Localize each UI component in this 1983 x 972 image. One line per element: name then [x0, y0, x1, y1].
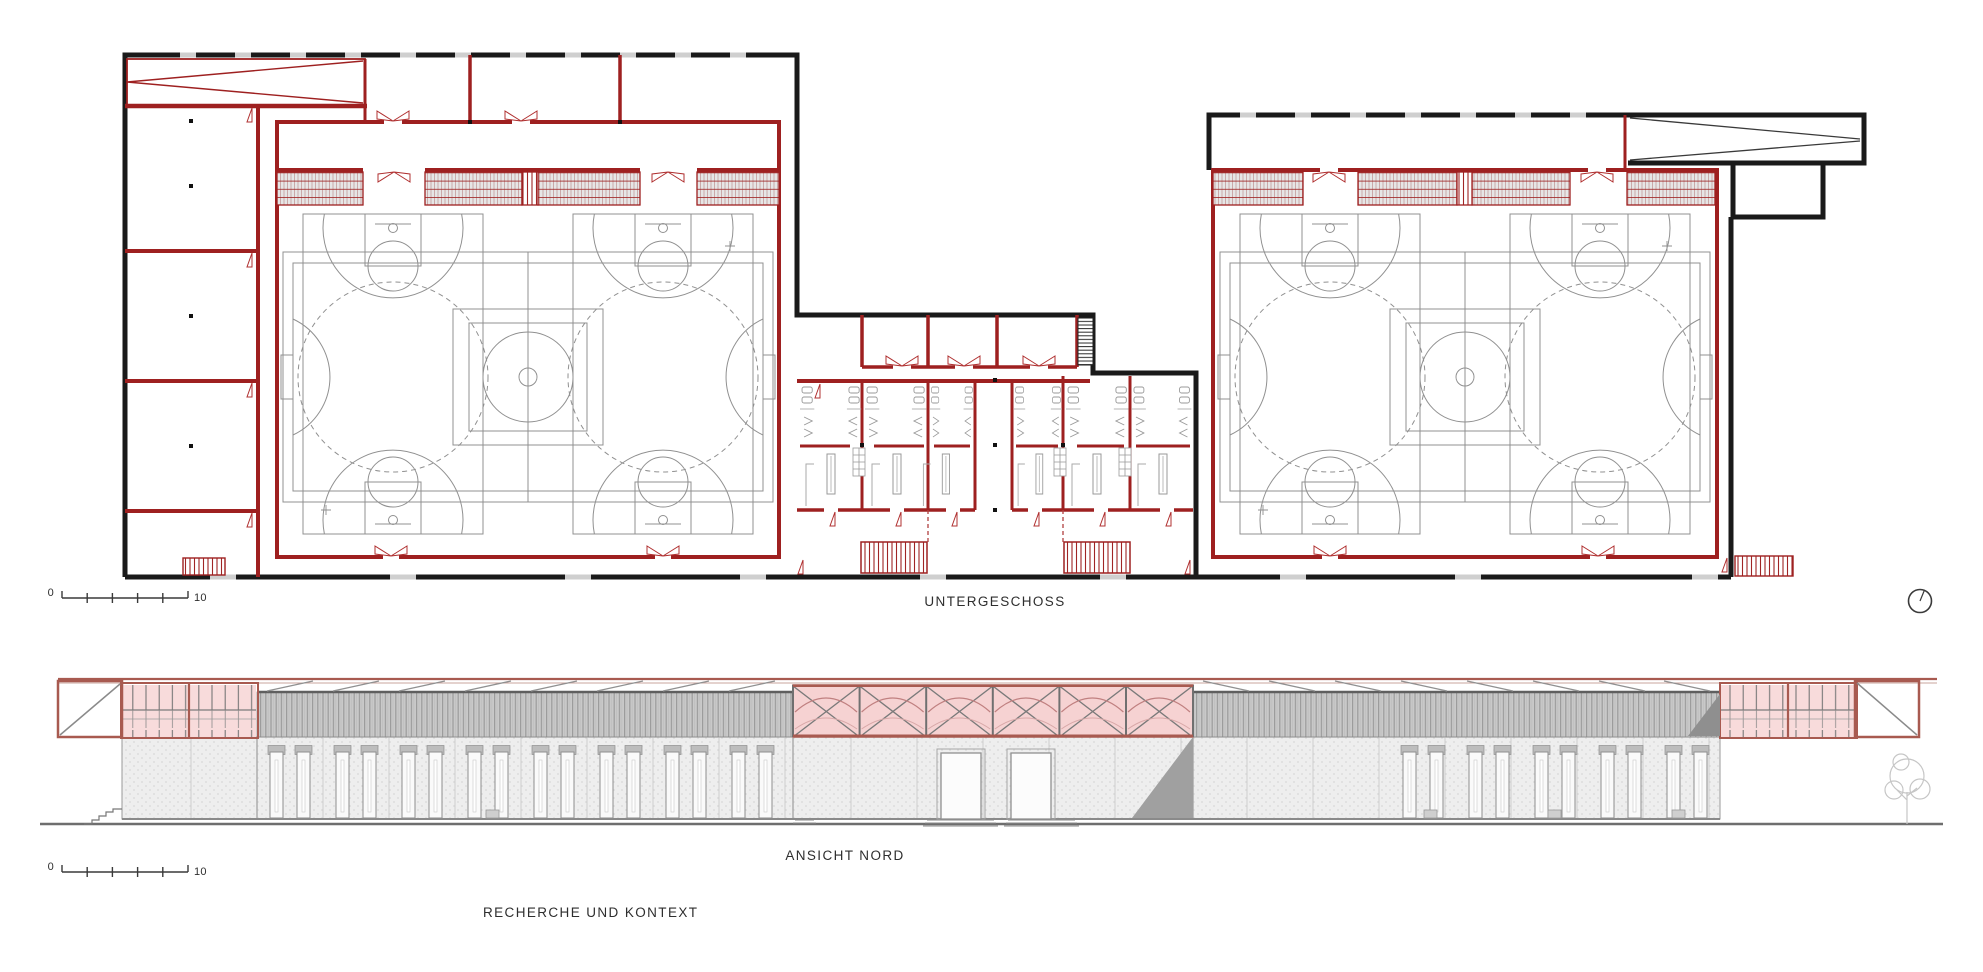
courts-east [1218, 214, 1712, 534]
north-arrow-icon [1909, 590, 1932, 613]
elevation-drawing [40, 679, 1943, 826]
plan-west-wing [125, 59, 367, 577]
plan-scale-bar [62, 591, 188, 603]
floor-plan-drawing [125, 55, 1864, 577]
sheet-caption: RECHERCHE UND KONTEXT [483, 905, 698, 920]
hall-east [1213, 115, 1793, 576]
plan-title: UNTERGESCHOSS [860, 594, 1130, 609]
bleachers-east [1213, 172, 1715, 205]
bleachers-west [277, 172, 779, 205]
elevation-scale-start: 0 [34, 861, 54, 873]
plan-exterior-walls [125, 55, 1864, 577]
open-frame-west [58, 681, 122, 737]
tree [1885, 754, 1930, 824]
glazed-section-west [121, 683, 258, 738]
drawing-sheet: 0 10 UNTERGESCHOSS 0 10 ANSICHT NORD REC… [0, 0, 1983, 972]
plan-scale-start: 0 [34, 587, 54, 599]
elevation-scale-end: 10 [194, 866, 207, 878]
elevation-scale-bar [62, 865, 188, 877]
courts-west [281, 214, 775, 534]
open-frame-east [1855, 681, 1919, 737]
clerestory-glazing [793, 685, 1193, 737]
elevation-title: ANSICHT NORD [710, 848, 980, 863]
glazed-section-east [1720, 683, 1857, 738]
drawing-canvas [0, 0, 1983, 972]
plan-scale-end: 10 [194, 592, 207, 604]
plan-ramp-east [1630, 118, 1860, 160]
